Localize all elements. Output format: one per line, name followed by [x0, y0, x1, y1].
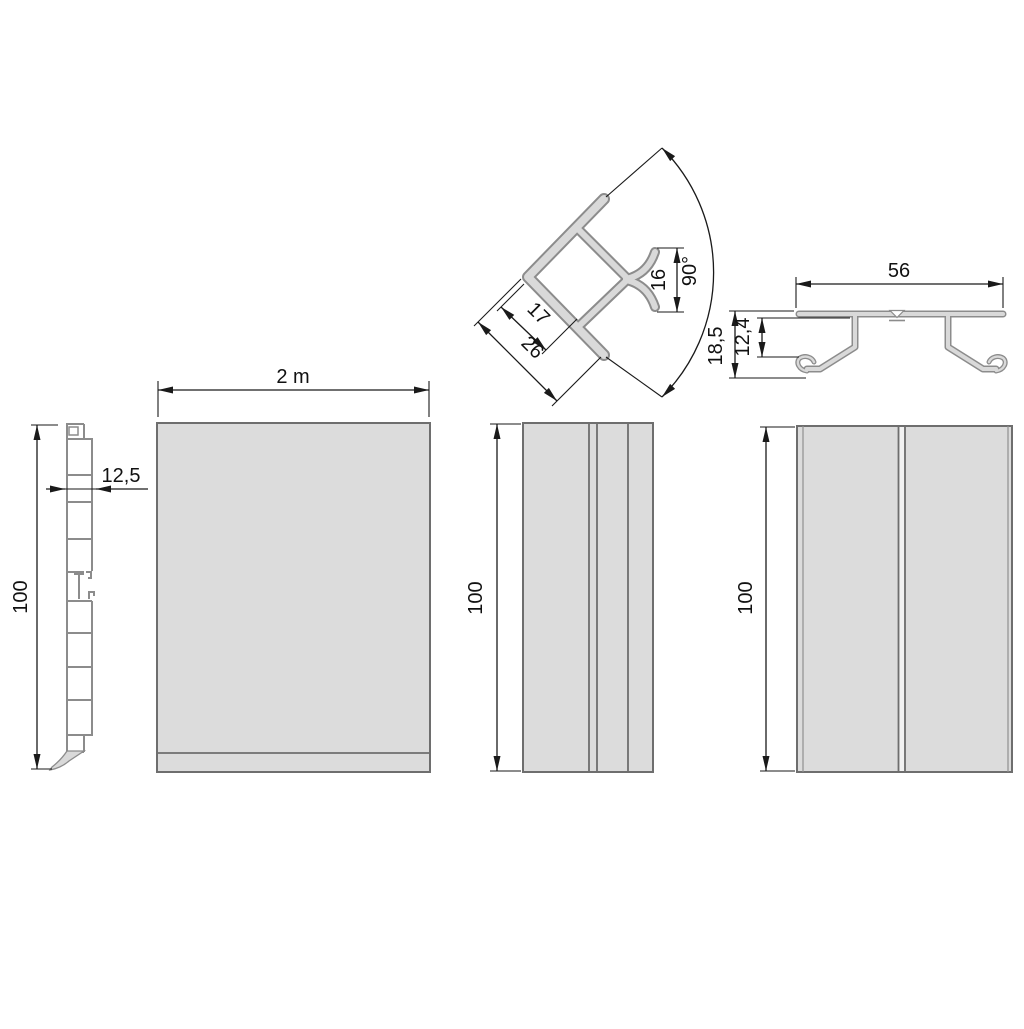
dim-label-clip-inner-height: 12,4 — [732, 318, 754, 357]
extension-line — [606, 148, 662, 197]
extension-line — [606, 357, 662, 397]
dim-label-outer-width: 26 — [517, 332, 548, 363]
right-panel-view: 100 — [735, 426, 1012, 772]
main-panel-view: 2 m — [157, 366, 430, 772]
dim-label-clip-width: 56 — [888, 260, 910, 282]
plinth-dimension-drawing: 17 26 16 90° 56 18,5 12,4 — [0, 0, 1024, 1024]
dim-label-clip-opening: 16 — [648, 269, 670, 291]
side-profile-cap-cell — [69, 427, 78, 435]
corner-outer-bar-outline — [528, 199, 604, 355]
dim-label-right-height: 100 — [735, 581, 757, 614]
drawing-canvas: 17 26 16 90° 56 18,5 12,4 — [0, 0, 1024, 1024]
side-profile-foot-lip — [50, 751, 84, 770]
side-profile-view: 100 12,5 — [10, 424, 148, 770]
dim-label-angle: 90° — [679, 256, 701, 286]
dim-label-length: 2 m — [276, 366, 309, 388]
corner-outer-bar — [528, 199, 604, 355]
mid-panel-face — [523, 423, 653, 772]
main-panel-face — [157, 423, 430, 772]
corner-web-bottom — [579, 280, 627, 326]
mid-panel-view: 100 — [465, 423, 653, 772]
clip-profile-view: 56 18,5 12,4 — [705, 260, 1005, 378]
extension-line — [542, 319, 577, 354]
extension-line — [552, 357, 601, 406]
dim-label-thickness: 12,5 — [102, 465, 141, 487]
dim-label-side-height: 100 — [10, 580, 32, 613]
right-panel-center-gap — [900, 427, 905, 771]
dim-label-mid-height: 100 — [465, 581, 487, 614]
corner-web-top — [579, 230, 627, 278]
dim-line-26 — [478, 322, 557, 401]
corner-profile-view: 17 26 16 90° — [474, 148, 714, 406]
dim-label-clip-total-height: 18,5 — [705, 327, 727, 366]
